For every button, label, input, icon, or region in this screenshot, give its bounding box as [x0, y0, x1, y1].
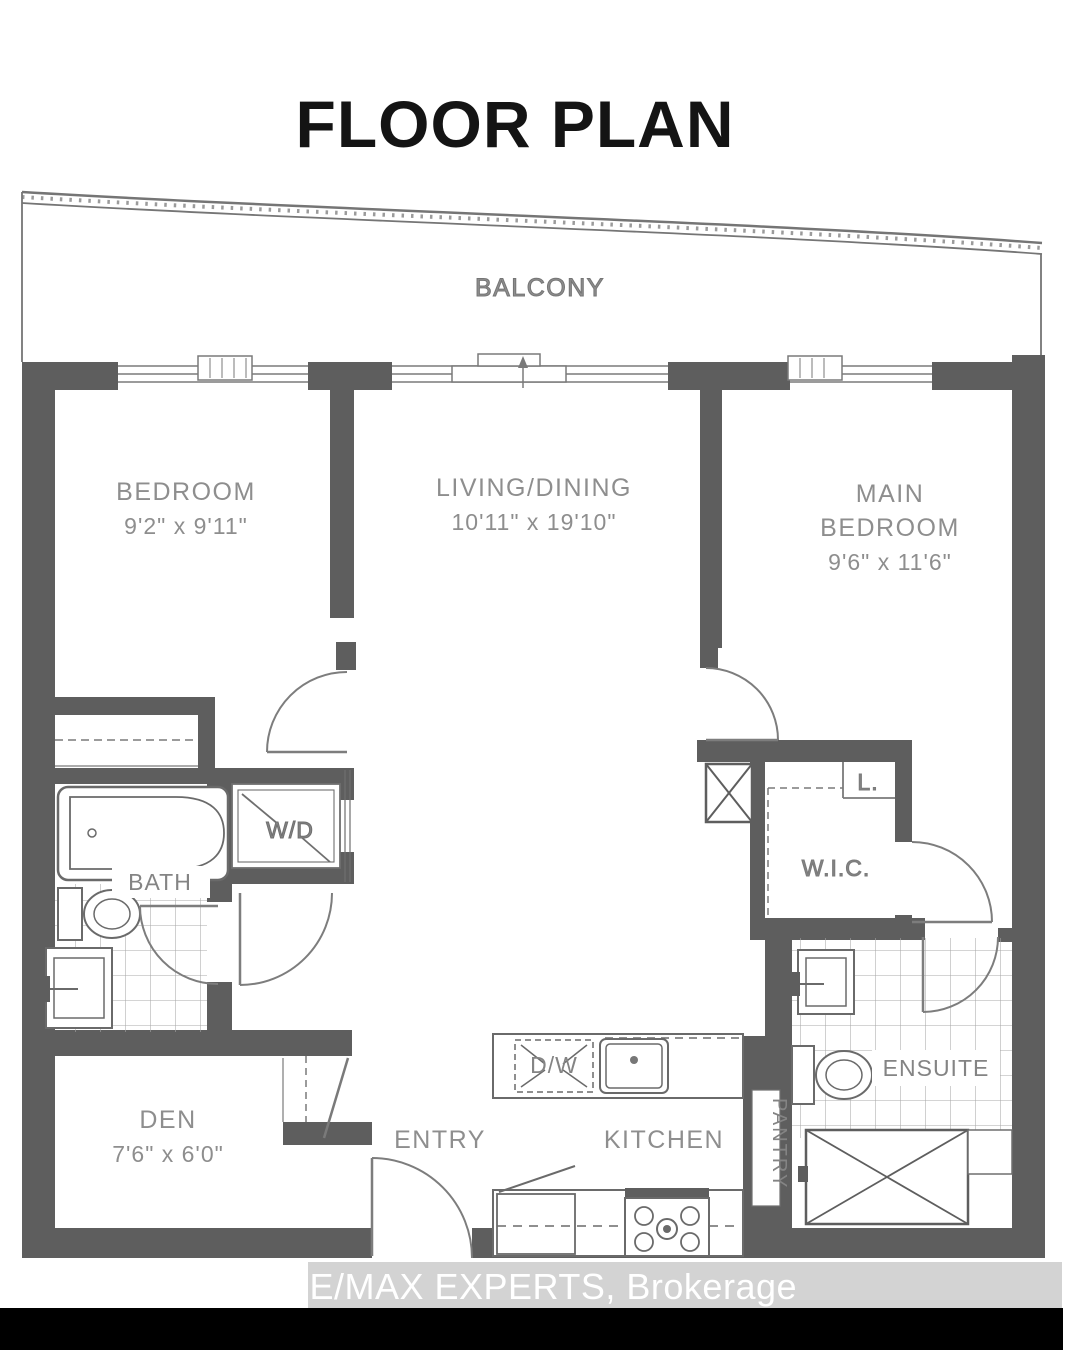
linen-label: L. [857, 769, 878, 795]
footer-bar [0, 1308, 1063, 1350]
entry-label: ENTRY [394, 1126, 486, 1154]
pantry-label: PANTRY [768, 1098, 790, 1189]
bath-vanity-sink [40, 948, 112, 1028]
main-bedroom-label-1: MAIN [856, 480, 925, 508]
kitchen-label: KITCHEN [604, 1126, 724, 1154]
wd-label: W/D [266, 817, 314, 843]
wic-door [912, 842, 992, 922]
bath-label: BATH [128, 869, 192, 895]
wic-north-wall [697, 740, 912, 762]
wd-south-wall [232, 868, 354, 884]
main-bedroom-west-wall [700, 390, 722, 648]
balcony: BALCONY [22, 192, 1042, 362]
left-wall [22, 362, 55, 1258]
living-window [392, 354, 668, 388]
floor-plan-page: FLOOR PLAN BALCONY [0, 0, 1080, 1350]
den-north-wall [22, 1030, 352, 1056]
brokerage-watermark: RE/MAX EXPERTS, Brokerage [283, 1266, 797, 1308]
ensuite-label: ENSUITE [883, 1055, 990, 1081]
shower [798, 1130, 968, 1224]
ensuite-toilet [792, 1046, 872, 1104]
balcony-rail-hatch [22, 197, 1042, 248]
bedroom-window [118, 356, 308, 382]
wic-east-wall [895, 762, 912, 842]
balcony-label: BALCONY [475, 274, 605, 302]
bedroom-door [267, 672, 347, 752]
bedroom-closet-wall [55, 697, 212, 715]
stove [625, 1198, 709, 1256]
fridge [497, 1194, 575, 1254]
bottom-wall-left [22, 1228, 372, 1258]
bedroom-closet [55, 740, 198, 766]
den-label: DEN [139, 1106, 196, 1134]
bedroom-east-wall [330, 390, 354, 618]
living-dining-label: LIVING/DINING [436, 474, 632, 502]
dw-label: D/W [530, 1052, 578, 1078]
fridge-door-open [499, 1166, 575, 1192]
bath-north-wall [55, 768, 354, 784]
bedroom-dims: 9'2" x 9'11" [124, 513, 248, 539]
den-dims: 7'6" x 6'0" [112, 1141, 224, 1167]
faucet [40, 976, 50, 1002]
shower-ledge [968, 1130, 1012, 1174]
ensuite-west-wall [765, 940, 792, 1036]
kitchen-counter [493, 1166, 743, 1256]
washer-dryer-closet: W/D [232, 770, 350, 882]
structural-column [706, 764, 752, 822]
main-bedroom-window [788, 356, 932, 382]
faucet [790, 972, 800, 996]
right-wall [1012, 355, 1045, 1258]
ensuite: ENSUITE [790, 938, 1012, 1224]
ensuite-north-wall [750, 918, 925, 940]
floor-plan-drawing: BALCONY [0, 0, 1080, 1350]
main-bedroom-door [706, 668, 778, 740]
main-bedroom-label-2: BEDROOM [820, 514, 960, 542]
kitchen-sink [600, 1039, 668, 1093]
bedroom-label: BEDROOM [116, 478, 256, 506]
wic-label: W.I.C. [802, 855, 871, 881]
walk-in-closet: L. W.I.C. [706, 762, 895, 916]
living-dining-dims: 10'11" x 19'10" [451, 509, 616, 535]
entry-door [372, 1158, 472, 1258]
ensuite-vanity-sink [790, 950, 854, 1014]
wd-door [240, 893, 332, 985]
bathroom: BATH [40, 787, 228, 1032]
main-bedroom-dims: 9'6" x 11'6" [828, 549, 952, 575]
windows [118, 354, 932, 388]
